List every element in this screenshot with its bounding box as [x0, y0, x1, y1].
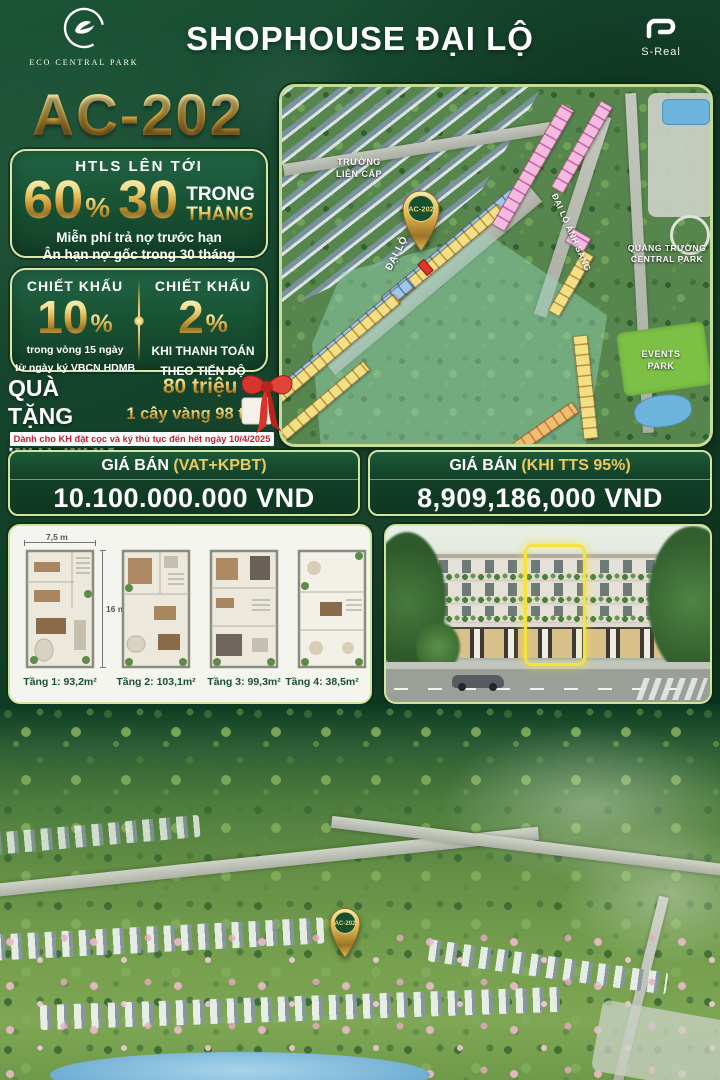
plan-width-line: [24, 542, 96, 543]
discount-1-note1: trong vòng 15 ngày: [12, 344, 138, 358]
htls-duration-line1: TRONG: [186, 185, 255, 204]
plan-depth-line: [102, 550, 103, 668]
aerial-pin-label: AC-202: [334, 920, 356, 927]
htls-percent: 60: [23, 173, 83, 227]
discount-1-value: 10: [37, 296, 88, 340]
price-2-suffix: (KHI TTS 95%): [521, 457, 630, 474]
map-label-events: EVENTS PARK: [626, 349, 696, 372]
price-2-title: GIÁ BÁN: [449, 457, 517, 474]
map-label-plaza: QUẢNG TRƯỜNG CENTRAL PARK: [623, 243, 711, 265]
htls-offer-box: HTLS LÊN TỚI 60 % 30 TRONG THÁNG Miễn ph…: [10, 149, 268, 258]
plan-width-dimension: 7,5 m: [46, 532, 68, 542]
discount-2-value: 2: [178, 296, 204, 340]
brand-name: ECO CENTRAL PARK: [18, 58, 150, 67]
photo-crosswalk: [636, 678, 708, 700]
floorplan-1: [24, 548, 96, 670]
unit-code: AC-202: [4, 82, 272, 149]
map-pin-icon: AC-202: [399, 187, 443, 255]
htls-note-1: Miễn phí trả nợ trước hạn: [12, 230, 266, 247]
floorplan-2: [120, 548, 192, 670]
photo-car: [452, 675, 504, 688]
gift-title-line1: QUÀ TẶNG: [8, 374, 126, 430]
htls-months: 30: [118, 173, 178, 227]
price-1-suffix: (VAT+KPBT): [173, 457, 266, 474]
gift-bow-icon: [234, 364, 300, 438]
floorplan-1-label: Tầng 1: 93,2m²: [14, 676, 106, 688]
discount-2: CHIẾT KHẤU 2 % KHI THANH TOÁN THEO TIẾN …: [140, 270, 266, 370]
discount-2-note1: KHI THANH TOÁN: [140, 344, 266, 360]
discount-1-sign: %: [90, 309, 112, 340]
price-1-value: 10.100.000.000 VND: [10, 480, 358, 516]
sparkle-divider: [138, 280, 140, 362]
htls-percent-sign: %: [85, 188, 110, 227]
masterplan-panel: TRƯỜNG LIÊN CẤP QUẢNG TRƯỜNG CENTRAL PAR…: [279, 84, 713, 447]
price-1-title: GIÁ BÁN: [101, 457, 169, 474]
price-2-value: 8,909,186,000 VND: [370, 480, 710, 516]
shophouse-poster: ECO CENTRAL PARK SHOPHOUSE ĐẠI LỘ S-Real…: [0, 0, 720, 1080]
aerial-pin-icon: AC-202: [327, 904, 363, 962]
map-label-school: TRƯỜNG LIÊN CẤP: [316, 157, 402, 180]
poster-title: SHOPHOUSE ĐẠI LỘ: [0, 20, 720, 58]
map-plaza-pool: [662, 99, 710, 125]
floorplan-4-label: Tầng 4: 38,5m²: [276, 676, 368, 688]
shophouse-photo-panel: [384, 524, 712, 704]
htls-duration: TRONG THÁNG: [186, 185, 255, 227]
floorplans-panel: 7,5 m 16 m: [8, 524, 372, 704]
map-pin-label: AC-202: [408, 205, 434, 214]
discount-2-sign: %: [206, 309, 228, 340]
floorplan-3: [208, 548, 280, 670]
price-box-discounted: GIÁ BÁN (KHI TTS 95%) 8,909,186,000 VND: [368, 450, 712, 516]
sreal-logo: S-Real: [626, 16, 696, 58]
htls-note-2: Ân hạn nợ gốc trong 30 tháng: [12, 247, 266, 264]
discount-box: CHIẾT KHẤU 10 % trong vòng 15 ngày từ ng…: [10, 268, 268, 372]
discount-1: CHIẾT KHẤU 10 % trong vòng 15 ngày từ ng…: [12, 270, 138, 370]
floorplan-2-label: Tầng 2: 103,1m²: [110, 676, 202, 688]
sreal-icon: [643, 16, 679, 40]
floorplan-4: [296, 548, 368, 670]
htls-duration-line2: THÁNG: [186, 205, 255, 224]
sreal-name: S-Real: [626, 46, 696, 58]
aerial-view: AC-202 HƯỚNG TÂY NAM Diện Tích Đất 120 m…: [0, 704, 720, 1080]
price-box-listed: GIÁ BÁN (VAT+KPBT) 10.100.000.000 VND: [8, 450, 360, 516]
photo-road: [386, 662, 712, 702]
unit-highlight-frame: [524, 544, 586, 666]
